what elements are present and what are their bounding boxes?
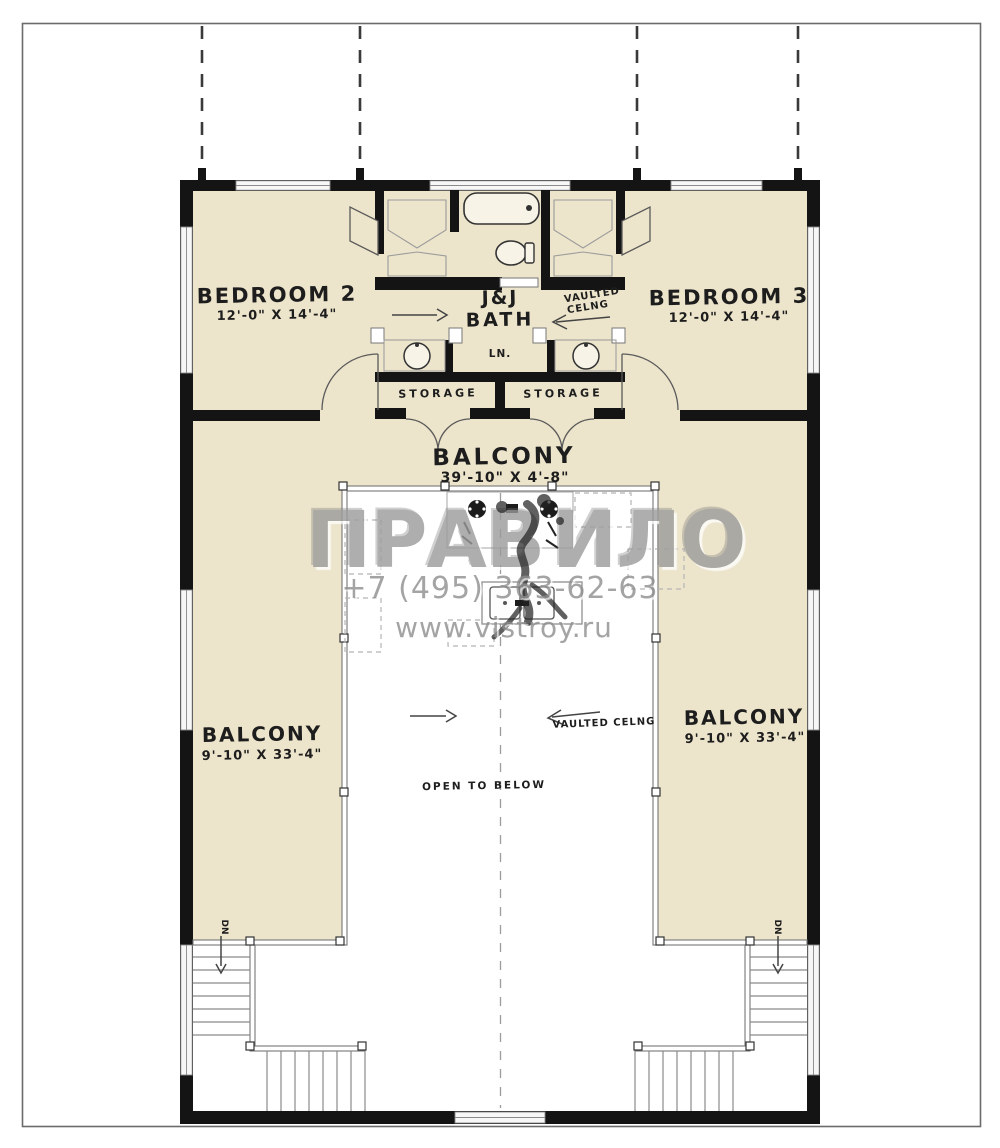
window-top-bedroom2	[236, 181, 330, 190]
balcony-left-label: BALCONY	[202, 721, 323, 747]
window-top-bath	[430, 181, 570, 190]
bedroom2-dims: 12'-0" X 14'-4"	[217, 307, 338, 324]
toilet-bowl	[496, 241, 526, 265]
stairs-right-upper-run	[750, 957, 807, 1035]
stairs-left-lower-run	[267, 1051, 365, 1111]
window-right-stairs	[808, 945, 819, 1075]
bedroom3-dims: 12'-0" X 14'-4"	[669, 309, 790, 326]
tub-faucet	[526, 205, 532, 211]
balcony-right-dims: 9'-10" X 33'-4"	[685, 730, 806, 747]
window-left-stairs	[181, 945, 192, 1075]
toilet-tank	[525, 243, 534, 263]
kitchen-island	[482, 582, 582, 624]
first-floor-hints	[345, 492, 684, 1108]
bath-label-line2: BATH	[466, 308, 535, 331]
window-left-balcony	[181, 590, 192, 730]
stairs-right-lower-run	[635, 1051, 733, 1111]
balcony-top-dims: 39'-10" X 4'-8"	[441, 470, 570, 486]
dn-right-label: DN	[772, 919, 782, 934]
balcony-arrow-right	[410, 710, 456, 722]
storage-right-label: STORAGE	[523, 386, 603, 400]
bedroom2-label: BEDROOM 2	[197, 282, 358, 309]
balcony-left-dims: 9'-10" X 33'-4"	[202, 747, 323, 764]
floorplan-drawing	[0, 0, 1000, 1148]
balcony-top-label: BALCONY	[432, 443, 576, 471]
roof-dashed-lines	[202, 26, 798, 180]
open-to-below-label: OPEN TO BELOW	[422, 779, 546, 793]
balcony-right-label: BALCONY	[684, 704, 805, 730]
window-right-balcony	[808, 590, 819, 730]
dn-left-label: DN	[219, 919, 229, 934]
window-top-bedroom3	[671, 181, 762, 190]
roofline-stubs	[198, 168, 802, 182]
cooktop	[462, 500, 558, 548]
linen-label: LN.	[489, 348, 511, 360]
storage-left-label: STORAGE	[398, 386, 478, 400]
stairs-left-upper-run	[193, 957, 250, 1035]
door-bottom-center	[455, 1112, 545, 1123]
window-right-bedroom3	[808, 227, 819, 373]
window-left-bedroom2	[181, 227, 192, 373]
left-balcony-floor	[192, 490, 342, 945]
bedroom3-label: BEDROOM 3	[649, 284, 810, 311]
floorplan-page: BEDROOM 2 12'-0" X 14'-4" BEDROOM 3 12'-…	[0, 0, 1000, 1148]
bath-label-line1: J&J	[481, 287, 518, 310]
